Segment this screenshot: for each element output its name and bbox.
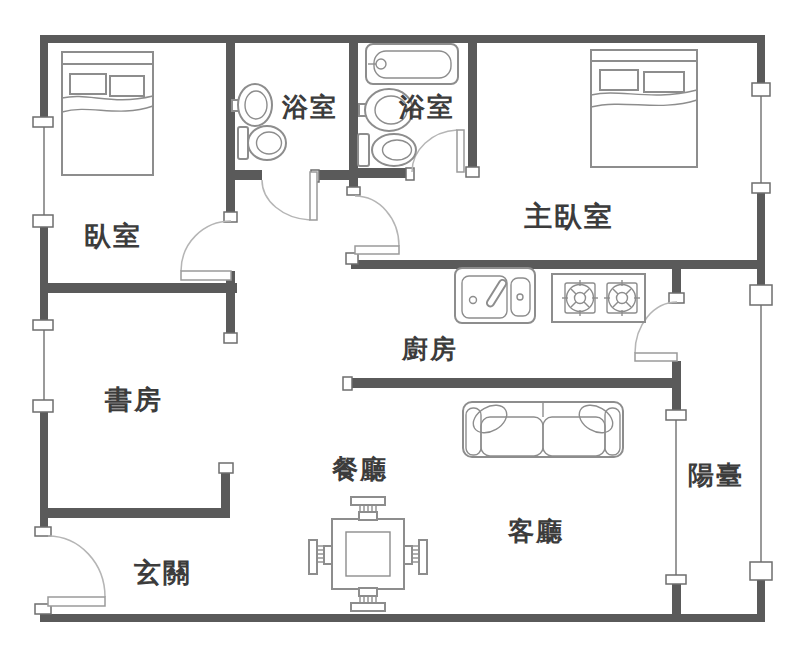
floor-plan-canvas: 臥室 浴室 浴室 主臥室 廚房 書房 餐廳 客廳 玄關 陽臺 [0,0,800,667]
wall-balcony-b [672,361,681,410]
door-leaf-balcony [635,353,677,361]
window-sill [752,83,770,96]
window-balcony-right-glass [760,305,762,562]
window-sill [33,117,53,127]
room-label-study: 書房 [104,384,163,415]
wall-bathroom2-right [468,43,477,167]
chair-icon [404,540,427,574]
window-sill [666,410,686,420]
window-study-glass [43,330,45,400]
dining-table-icon [332,519,404,589]
door-leaf-bedroom [181,271,231,280]
wall-end-cap [466,167,479,177]
kitchen-sink-icon [455,268,535,323]
double-bed-icon [62,52,153,175]
wall-end-cap [219,463,233,473]
double-bed-icon [591,50,697,167]
chair-icon [351,588,385,611]
wall-left-a [40,43,48,117]
room-label-balcony: 陽臺 [688,460,744,490]
washbasin-icon [232,84,272,126]
window-sill [33,320,53,330]
wall-study-bottom [48,508,230,518]
wall-bedroom-right [226,43,235,212]
room-label-entrance: 玄關 [133,557,192,588]
toilet-icon [238,126,286,160]
window-sill [750,285,772,305]
wall-right-b [757,193,765,285]
wall-top [40,35,765,43]
room-label-living: 客廳 [507,516,564,546]
wall-right-c [757,580,765,614]
wall-kitchen-bottom [348,378,676,388]
room-label-bathroom1: 浴室 [281,92,338,122]
window-sill [752,183,770,193]
door-arc-master-bedroom [355,196,399,246]
room-label-kitchen: 廚房 [401,334,458,364]
chair-icon [351,497,385,520]
door-arc-entrance [48,536,105,597]
door-leaf-entrance [48,597,105,606]
wall-bathroom1-bottom-right [317,170,349,180]
wall-end-cap [224,333,237,343]
window-sill [666,575,686,584]
window-bedroom-glass [43,127,45,215]
wall-left-b [40,227,48,320]
room-label-dining: 餐廳 [331,454,388,484]
door-jamb [35,527,51,536]
bathtub-icon [366,44,458,84]
gas-stove-icon [552,274,645,322]
wall-left-c [40,412,48,527]
wall-bedroom-bottom [48,283,237,293]
window-balcony-partition-glass [675,420,677,575]
wall-end-cap [343,377,352,390]
toilet-icon [358,134,416,166]
room-label-master-bedroom: 主臥室 [524,200,614,233]
door-arc-bathroom1 [262,180,310,220]
wall-bottom [40,614,765,622]
wall-study-stub [221,473,230,508]
wall-corridor [226,293,235,333]
wall-balcony-c [672,584,681,614]
wall-bathroom2-bottom [358,168,406,178]
window-sill [33,400,53,412]
wall-bathroom-divider [349,43,358,187]
door-jamb [347,187,360,195]
chair-icon [309,540,332,574]
wall-balcony-a [672,269,681,293]
room-label-bedroom: 臥室 [84,220,142,251]
wall-kitchen-top [351,260,765,269]
door-arc-bedroom [181,221,231,271]
door-leaf-master-bedroom [355,246,399,254]
room-label-bathroom2: 浴室 [398,92,455,122]
wall-bathroom1-bottom-left [235,170,262,180]
door-leaf-bathroom2 [457,130,464,172]
window-master-glass [760,96,762,183]
window-sill [33,215,53,227]
door-arc-bathroom2 [412,130,457,172]
door-leaf-bathroom1 [310,172,317,220]
window-sill [750,562,772,580]
wall-right-a [757,43,765,83]
floor-plan: 臥室 浴室 浴室 主臥室 廚房 書房 餐廳 客廳 玄關 陽臺 [0,0,800,667]
sofa-icon [463,400,623,457]
